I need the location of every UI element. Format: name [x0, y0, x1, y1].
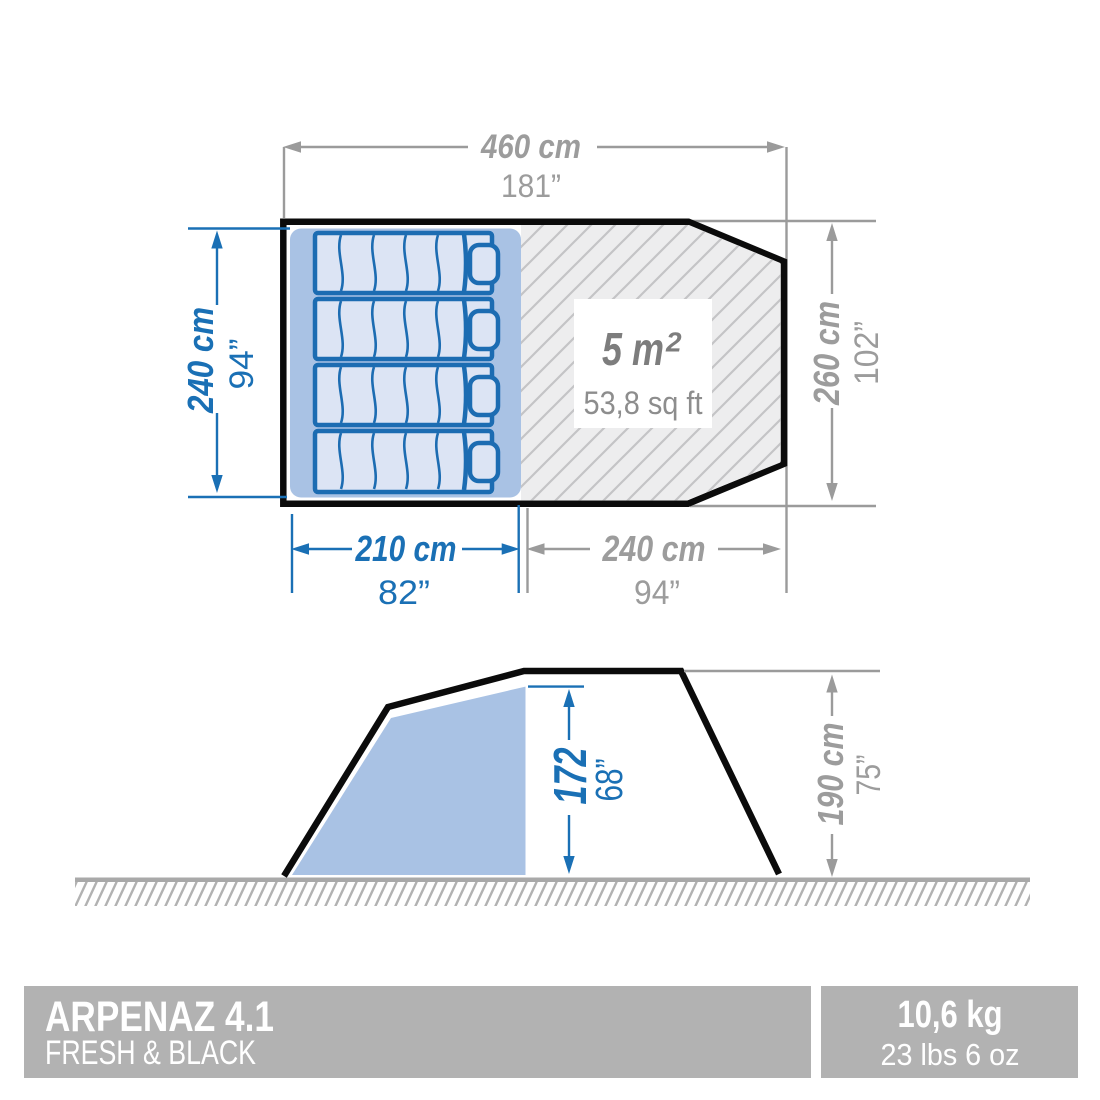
svg-text:240 cm: 240 cm	[180, 307, 221, 414]
svg-text:5 m: 5 m	[602, 323, 664, 375]
svg-text:23 lbs 6 oz: 23 lbs 6 oz	[881, 1037, 1020, 1072]
svg-text:2: 2	[665, 327, 682, 358]
svg-text:210 cm: 210 cm	[355, 528, 457, 569]
svg-text:75”: 75”	[850, 755, 888, 796]
svg-text:181”: 181”	[501, 168, 561, 204]
svg-text:102”: 102”	[848, 321, 886, 385]
svg-text:94”: 94”	[223, 339, 261, 390]
svg-text:82”: 82”	[378, 574, 430, 612]
svg-text:460 cm: 460 cm	[480, 128, 581, 166]
svg-text:260 cm: 260 cm	[806, 301, 847, 406]
svg-text:190 cm: 190 cm	[810, 723, 851, 826]
svg-text:94”: 94”	[634, 574, 680, 612]
svg-text:10,6 kg: 10,6 kg	[898, 994, 1003, 1036]
svg-text:68”: 68”	[589, 759, 631, 802]
svg-text:240 cm: 240 cm	[602, 528, 706, 569]
svg-text:FRESH & BLACK: FRESH & BLACK	[45, 1034, 256, 1072]
svg-text:53,8 sq ft: 53,8 sq ft	[584, 385, 703, 421]
